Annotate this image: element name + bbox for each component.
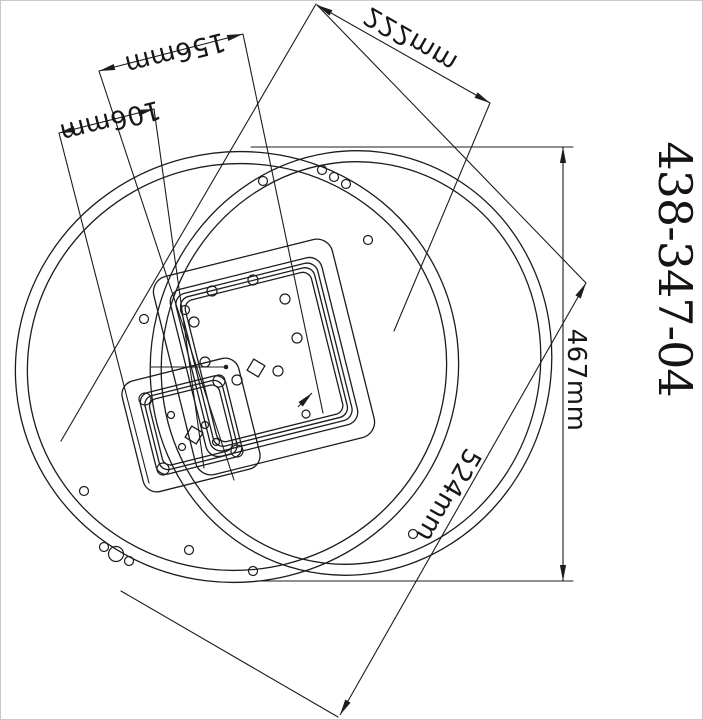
dimension-label-106: 106mm: [56, 94, 163, 148]
leader-arrow: [298, 393, 312, 407]
dimension-label-467: 467mm: [561, 329, 591, 432]
center-mark-dot: [224, 365, 229, 370]
dimension-label-524: 524mm: [409, 443, 486, 547]
drawing-sheet: 222mm 156mm 106mm 467mm 524mm 438-347-04: [0, 0, 703, 720]
technical-drawing: 222mm 156mm 106mm 467mm 524mm 438-347-04: [1, 1, 703, 720]
dimension-label-222: 222mm: [359, 1, 463, 78]
big-plate: [150, 236, 378, 478]
part-number-label: 438-347-04: [648, 141, 702, 396]
dimension-label-156: 156mm: [121, 26, 228, 80]
